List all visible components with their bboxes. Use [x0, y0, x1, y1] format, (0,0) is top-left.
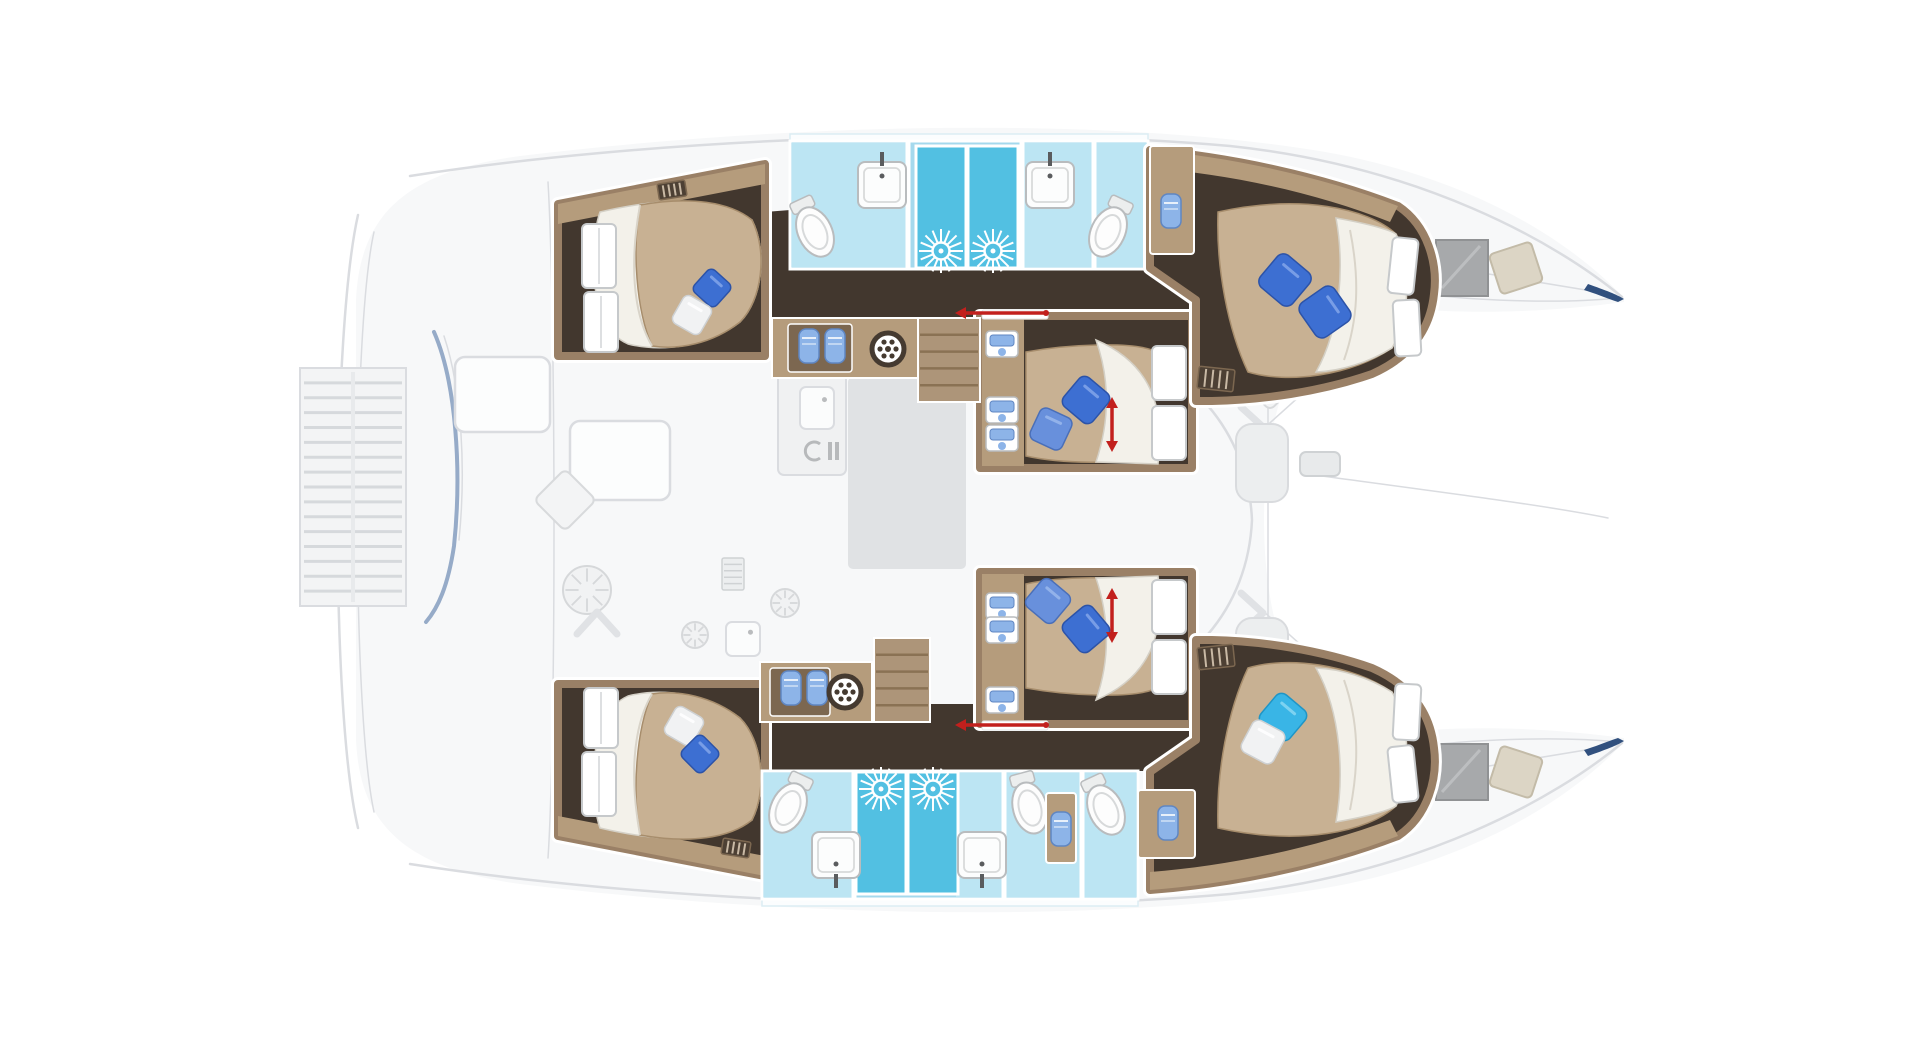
towel-5: [781, 671, 801, 705]
towel-0: [1161, 194, 1181, 228]
ghost-flower-2: [771, 589, 799, 617]
bedding-locker-1: [986, 397, 1018, 423]
towel-3: [799, 329, 819, 363]
vent-grille-0: [657, 180, 687, 200]
bedding-locker-0: [986, 331, 1018, 357]
towel-6: [807, 671, 827, 705]
towel-4: [825, 329, 845, 363]
hull1-fwd-window: [1387, 237, 1419, 295]
hull2-fwd-window2: [1393, 683, 1422, 740]
round-vent-1: [829, 676, 861, 708]
anchor-line: [1322, 476, 1608, 518]
windlass: [1300, 452, 1340, 476]
hull2-fwd-window: [1387, 745, 1419, 803]
bedding-locker-5: [986, 687, 1018, 713]
vent-grille-2: [721, 838, 751, 858]
floorplan-svg: [0, 0, 1920, 1060]
bedding-locker-4: [986, 617, 1018, 643]
round-vent-0: [872, 333, 904, 365]
towel-1: [1051, 812, 1071, 846]
hull1-fwd-window2: [1393, 299, 1422, 356]
ghost-flower-0: [563, 566, 611, 614]
hull2-mid-window2: [1152, 580, 1186, 634]
ghost-hatch-1: [800, 387, 834, 429]
ghost-flower-1: [682, 622, 708, 648]
vent-grille-1: [1197, 366, 1235, 392]
vent-grille-3: [1197, 644, 1235, 670]
hull1-mid-window: [1152, 346, 1186, 400]
swim-platform-slats: [300, 368, 406, 606]
ghost-table-0: [455, 357, 550, 432]
bedding-locker-2: [986, 425, 1018, 451]
catamaran-floorplan: [0, 0, 1920, 1060]
ghost-hatch-0: [726, 622, 760, 656]
shower-sunburst-1: [971, 229, 1015, 273]
companionway-stairs-0: [918, 318, 980, 402]
bow-window-1: [1436, 744, 1488, 800]
ghost-grille-0: [722, 558, 744, 590]
towel-2: [1158, 806, 1178, 840]
shower-sunburst-2: [859, 767, 903, 811]
bow-window-0: [1436, 240, 1488, 296]
hull2-mid-window: [1152, 640, 1186, 694]
hull1-mid-window2: [1152, 406, 1186, 460]
bedding-locker-3: [986, 593, 1018, 619]
foredeck-pod-0: [1236, 424, 1288, 502]
shower-sunburst-3: [911, 767, 955, 811]
shower-sunburst-0: [919, 229, 963, 273]
saloon-rug: [848, 377, 966, 569]
companionway-stairs-1: [874, 638, 930, 722]
